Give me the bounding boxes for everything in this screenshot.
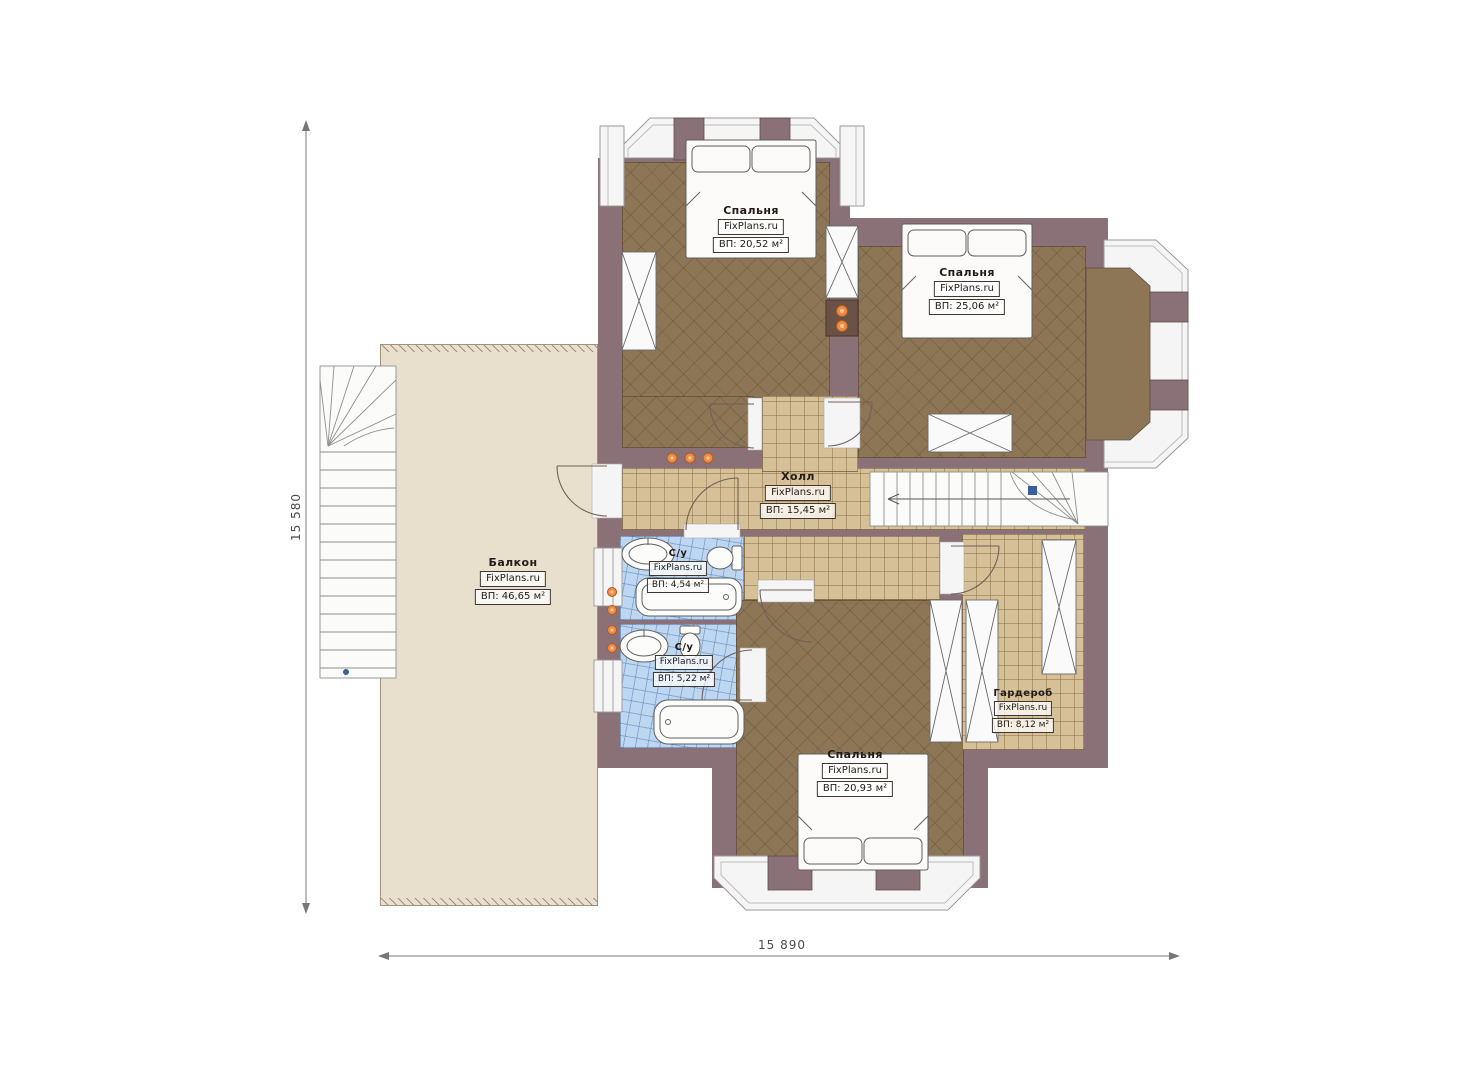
floor-plan-canvas: Спальня FixPlans.ru ВП: 20,52 м² Спальня…	[0, 0, 1474, 1080]
stair-end-marker	[343, 669, 349, 675]
horizontal-dimension-line	[378, 952, 1180, 960]
room-label-bathroom-2: С/у FixPlans.ru ВП: 5,22 м²	[653, 642, 715, 687]
room-brand: FixPlans.ru	[480, 571, 546, 587]
balcony-railing-top	[380, 344, 598, 352]
floor-hall	[622, 468, 1086, 530]
room-label-bathroom-1: С/у FixPlans.ru ВП: 4,54 м²	[647, 548, 709, 593]
room-area: ВП: 15,45 м²	[760, 503, 836, 519]
room-area: ВП: 4,54 м²	[647, 578, 709, 593]
room-area: ВП: 8,12 м²	[992, 718, 1054, 733]
room-name: Спальня	[817, 748, 893, 761]
room-area: ВП: 5,22 м²	[653, 672, 715, 687]
room-brand: FixPlans.ru	[822, 763, 888, 779]
room-label-bedroom-bottom: Спальня FixPlans.ru ВП: 20,93 м²	[817, 748, 893, 797]
room-label-balcony: Балкон FixPlans.ru ВП: 46,65 м²	[475, 556, 551, 605]
room-label-bedroom-top-left: Спальня FixPlans.ru ВП: 20,52 м²	[713, 204, 789, 253]
room-area: ВП: 25,06 м²	[929, 299, 1005, 315]
room-area: ВП: 46,65 м²	[475, 589, 551, 605]
floor-bedroom-bottom	[736, 600, 964, 858]
room-name: С/у	[647, 548, 709, 559]
floor-bedroom-top-left	[622, 162, 830, 398]
room-name: Балкон	[475, 556, 551, 569]
room-name: Холл	[760, 470, 836, 483]
room-brand: FixPlans.ru	[718, 219, 784, 235]
vertical-dimension-line	[302, 120, 310, 914]
balcony-area	[380, 344, 598, 906]
vertical-dimension-label: 15 580	[289, 493, 303, 541]
room-name: Спальня	[929, 266, 1005, 279]
floor-hall-corridor	[744, 536, 940, 600]
floor-hall-neck	[762, 396, 858, 472]
floor-bedroom-top-left-lower	[622, 396, 754, 448]
room-brand: FixPlans.ru	[655, 655, 713, 670]
room-brand: FixPlans.ru	[649, 561, 707, 576]
balcony-railing-bottom	[380, 898, 598, 906]
room-brand: FixPlans.ru	[994, 701, 1052, 716]
room-brand: FixPlans.ru	[765, 485, 831, 501]
room-area: ВП: 20,93 м²	[817, 781, 893, 797]
room-name: Спальня	[713, 204, 789, 217]
room-brand: FixPlans.ru	[934, 281, 1000, 297]
room-name: Гардероб	[992, 688, 1054, 699]
room-label-wardrobe-room: Гардероб FixPlans.ru ВП: 8,12 м²	[992, 688, 1054, 733]
horizontal-dimension-label: 15 890	[758, 938, 806, 952]
room-name: С/у	[653, 642, 715, 653]
room-label-hall: Холл FixPlans.ru ВП: 15,45 м²	[760, 470, 836, 519]
room-label-bedroom-top-right: Спальня FixPlans.ru ВП: 25,06 м²	[929, 266, 1005, 315]
room-area: ВП: 20,52 м²	[713, 237, 789, 253]
